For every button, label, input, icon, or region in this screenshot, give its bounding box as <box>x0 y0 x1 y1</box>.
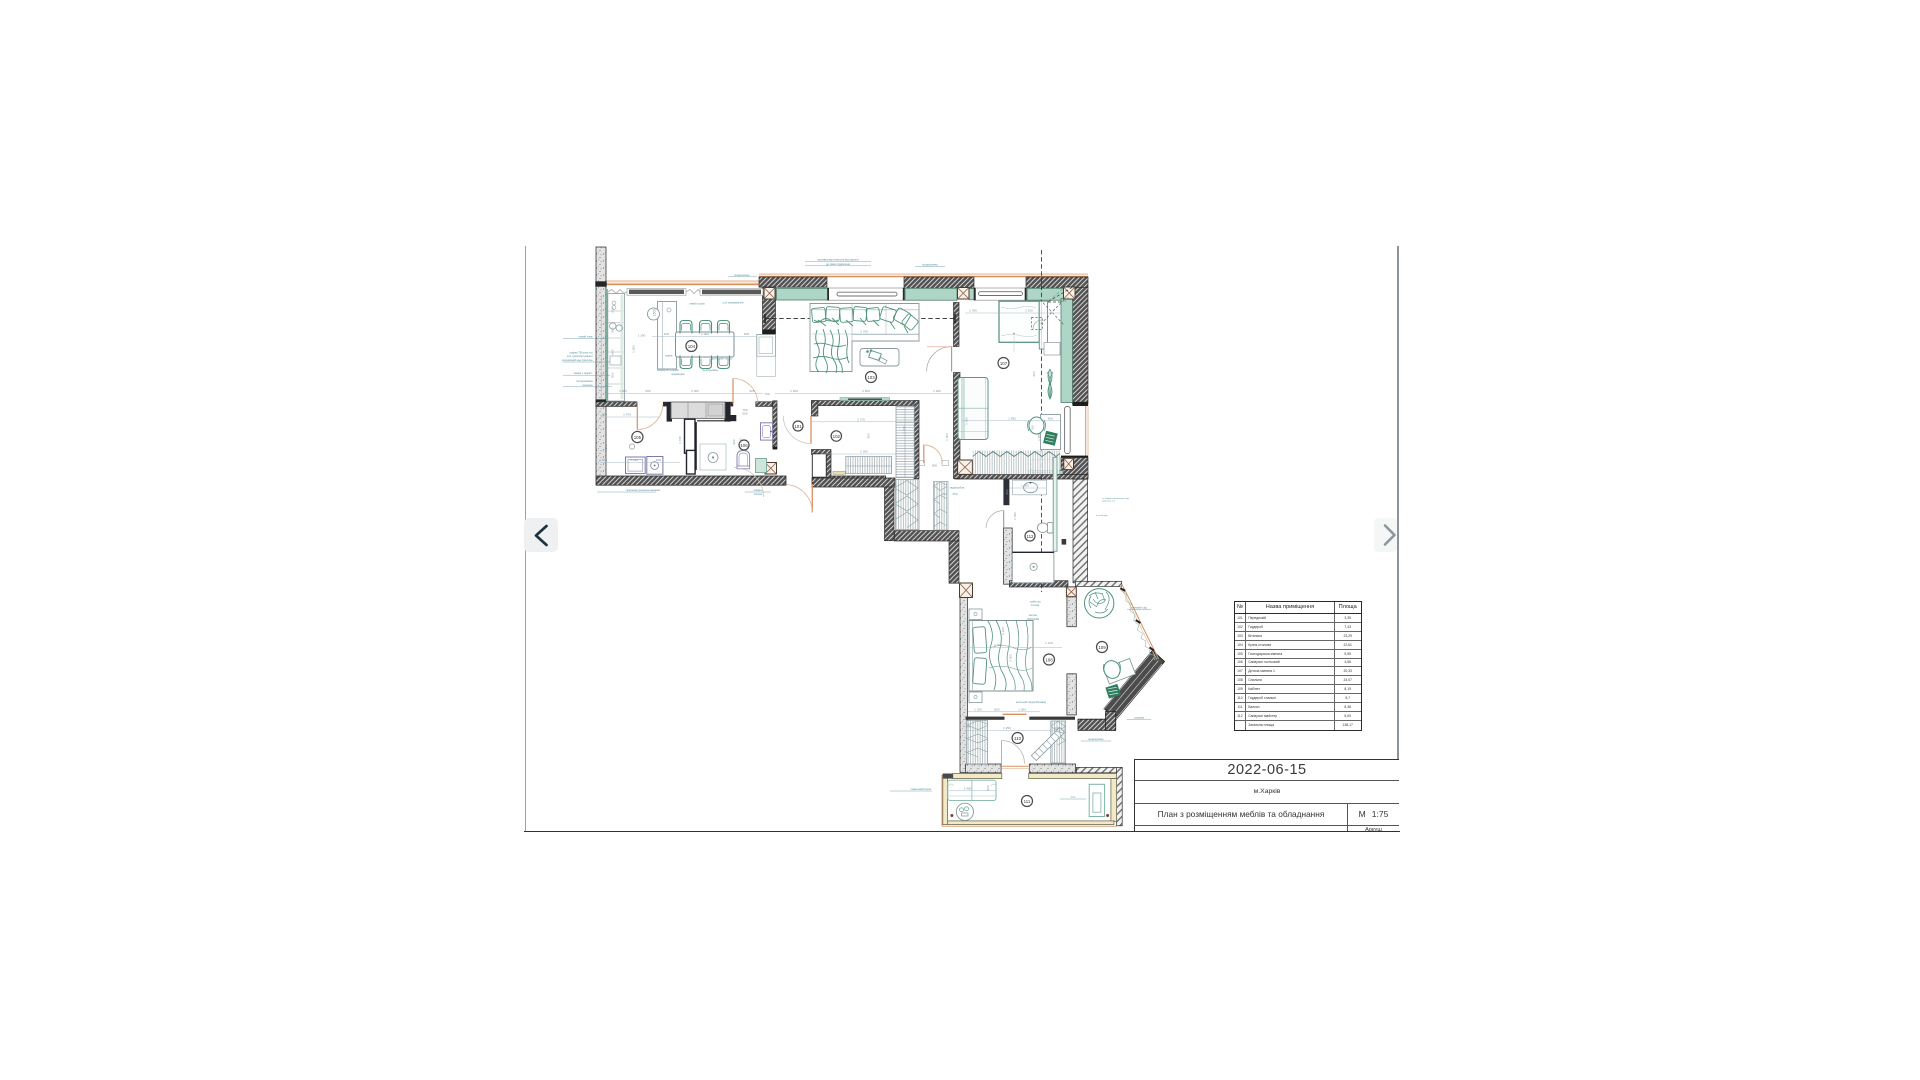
svg-text:102: 102 <box>833 434 841 439</box>
svg-text:2 200: 2 200 <box>860 450 868 454</box>
svg-text:107: 107 <box>1000 361 1008 366</box>
svg-text:1 200: 1 200 <box>933 389 941 393</box>
svg-text:лавка майстерня: лавка майстерня <box>910 787 931 791</box>
svg-text:112: 112 <box>1027 534 1035 539</box>
svg-text:300: 300 <box>867 433 871 438</box>
svg-text:1 000: 1 000 <box>965 417 969 425</box>
svg-text:109: 109 <box>1098 645 1106 650</box>
svg-text:1 600: 1 600 <box>632 345 636 353</box>
svg-text:2 100: 2 100 <box>1025 309 1033 313</box>
svg-text:3 700: 3 700 <box>860 329 868 333</box>
svg-text:колона: колона <box>754 493 763 496</box>
svg-text:левий злив: левий злив <box>579 335 594 339</box>
svg-text:2 720: 2 720 <box>857 418 865 422</box>
svg-text:600: 600 <box>645 389 650 393</box>
svg-text:103: 103 <box>867 375 875 380</box>
svg-text:905: 905 <box>744 332 749 336</box>
svg-text:стіл нержавіючий: стіл нержавіючий <box>723 300 744 304</box>
svg-text:матрац: матрац <box>1029 614 1038 617</box>
svg-text:780: 780 <box>1031 425 1035 430</box>
svg-text:1 470: 1 470 <box>623 413 631 417</box>
svg-text:кондиціонер: кондиціонер <box>1088 737 1104 741</box>
svg-text:саваж з підсвіт.: саваж з підсвіт. <box>574 371 593 375</box>
svg-text:весільний гардероб(шафа): весільний гардероб(шафа) <box>1016 701 1046 704</box>
svg-text:800: 800 <box>611 372 615 377</box>
svg-text:600: 600 <box>986 785 990 790</box>
svg-text:1 175: 1 175 <box>604 444 608 452</box>
svg-text:підлогою 1 м: підлогою 1 м <box>1102 500 1116 503</box>
svg-text:700: 700 <box>764 392 769 396</box>
svg-text:1 200: 1 200 <box>790 389 798 393</box>
svg-text:1 785: 1 785 <box>969 309 977 313</box>
svg-text:2 250: 2 250 <box>1003 726 1011 730</box>
svg-text:до рівня підвіконня: до рівня підвіконня <box>826 262 850 266</box>
svg-text:1800х2000: 1800х2000 <box>1027 618 1040 621</box>
svg-text:2 000: 2 000 <box>701 332 709 336</box>
svg-text:для транспортування: для транспортування <box>567 355 593 358</box>
svg-text:1 895: 1 895 <box>1008 416 1016 420</box>
svg-text:960: 960 <box>732 439 736 444</box>
svg-text:900: 900 <box>1032 371 1036 376</box>
svg-text:шафка ТВ зона птд: шафка ТВ зона птд <box>569 350 593 354</box>
svg-text:комунікацій над підлогою: комунікацій над підлогою <box>562 358 593 362</box>
svg-text:600: 600 <box>611 349 615 354</box>
svg-text:900: 900 <box>1005 489 1009 494</box>
svg-text:стелаж: стелаж <box>1031 604 1040 607</box>
svg-text:565: 565 <box>742 412 747 416</box>
svg-text:1 400: 1 400 <box>964 786 972 790</box>
svg-text:600: 600 <box>602 458 607 462</box>
svg-text:1 284: 1 284 <box>1018 707 1026 711</box>
svg-text:400: 400 <box>965 725 970 729</box>
svg-text:2 100: 2 100 <box>1001 627 1005 635</box>
svg-text:зимовий сад: зимовий сад <box>1131 605 1147 609</box>
svg-text:600: 600 <box>611 307 615 312</box>
svg-text:1 440: 1 440 <box>630 458 638 462</box>
svg-text:600: 600 <box>664 332 669 336</box>
svg-text:3 600: 3 600 <box>862 389 870 393</box>
svg-text:1 800: 1 800 <box>739 438 743 446</box>
svg-text:кондиціонер: кондиціонер <box>922 263 938 267</box>
svg-text:1 300: 1 300 <box>619 389 627 393</box>
svg-text:111: 111 <box>1024 799 1031 804</box>
svg-text:600: 600 <box>1054 726 1059 730</box>
svg-text:1 250: 1 250 <box>974 707 982 711</box>
svg-text:2 000: 2 000 <box>691 389 699 393</box>
svg-text:900: 900 <box>932 463 937 467</box>
svg-text:1 730: 1 730 <box>678 436 682 444</box>
svg-text:2 100: 2 100 <box>1058 299 1066 303</box>
svg-text:101: 101 <box>794 424 802 429</box>
svg-text:1 200: 1 200 <box>945 433 949 441</box>
svg-text:посудомийна: посудомийна <box>576 379 593 383</box>
svg-text:600: 600 <box>1048 416 1053 420</box>
svg-text:1 200: 1 200 <box>1037 433 1041 441</box>
svg-text:2 100: 2 100 <box>902 426 906 434</box>
svg-text:шафа(СВЧ)+пенал: шафа(СВЧ)+пенал <box>657 369 680 372</box>
svg-text:105: 105 <box>634 435 642 440</box>
svg-text:гардеробна: гардеробна <box>950 485 965 489</box>
svg-text:350: 350 <box>952 492 957 496</box>
svg-text:1 210: 1 210 <box>1045 641 1053 645</box>
svg-text:новий острів: новий острів <box>689 302 705 306</box>
svg-text:108: 108 <box>1045 657 1053 662</box>
svg-text:1 300: 1 300 <box>638 333 646 337</box>
svg-text:пральна+сушильна машина: пральна+сушильна машина <box>626 489 660 492</box>
svg-text:600: 600 <box>656 458 661 462</box>
svg-text:905: 905 <box>749 389 754 393</box>
svg-text:905: 905 <box>917 406 921 411</box>
svg-text:800: 800 <box>611 327 615 332</box>
svg-text:2 000: 2 000 <box>1009 654 1013 662</box>
svg-text:подовжувач: подовжувач <box>671 373 685 376</box>
svg-text:машина: машина <box>583 384 593 387</box>
svg-text:860: 860 <box>994 707 999 711</box>
svg-text:600: 600 <box>602 413 607 417</box>
svg-text:ст. шафа вертикальна над: ст. шафа вертикальна над <box>1102 497 1130 500</box>
svg-text:2 300: 2 300 <box>994 643 1002 647</box>
svg-text:1500: 1500 <box>653 309 657 317</box>
svg-text:вугільний стілець: вугільний стілець <box>712 358 733 361</box>
svg-text:104: 104 <box>688 344 696 349</box>
svg-text:під вбудовану: під вбудовану <box>702 369 719 372</box>
svg-text:зашивка вертикальна від підлог: зашивка вертикальна від підлоги <box>817 257 859 261</box>
svg-text:сходова: сходова <box>1134 717 1145 720</box>
svg-text:камінь: камінь <box>665 355 673 358</box>
svg-text:1 000: 1 000 <box>1021 483 1029 487</box>
svg-text:стіл: стіл <box>1071 795 1076 799</box>
svg-text:кондиціонер: кондиціонер <box>734 273 750 277</box>
svg-text:1 320: 1 320 <box>1013 512 1017 520</box>
svg-text:шафка-: шафка- <box>754 489 763 492</box>
svg-text:по всій душ: по всій душ <box>1096 514 1108 517</box>
svg-text:550: 550 <box>941 492 946 496</box>
svg-text:110: 110 <box>1014 736 1022 741</box>
